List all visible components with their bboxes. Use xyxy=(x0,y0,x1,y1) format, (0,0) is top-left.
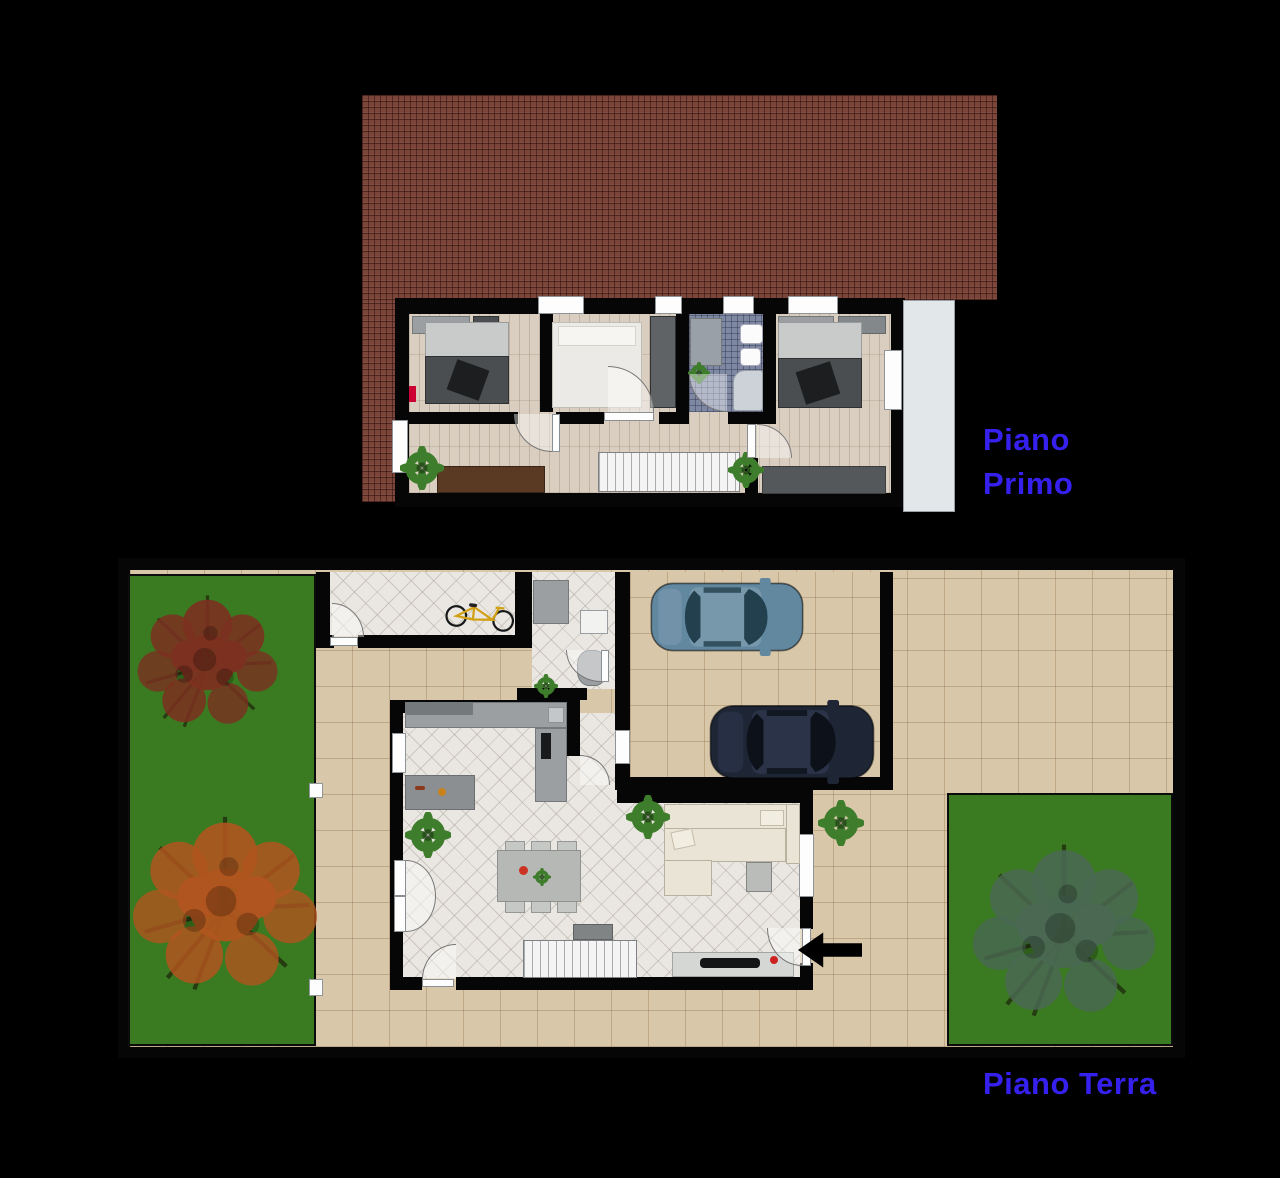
window xyxy=(392,733,406,773)
door-leaf xyxy=(330,637,358,646)
bed-headboard xyxy=(425,322,509,358)
dining-chair xyxy=(505,901,525,913)
wall-segment xyxy=(456,977,813,990)
floor-plan-canvas: Piano Primo xyxy=(0,0,1280,1178)
kitchen-counter-return xyxy=(535,728,567,802)
window xyxy=(884,350,902,410)
door-leaf xyxy=(601,650,609,682)
desk xyxy=(762,466,886,494)
small-table xyxy=(580,610,608,634)
staircase xyxy=(523,940,637,978)
window xyxy=(538,296,584,314)
wall-decor xyxy=(409,386,416,402)
sofa-chaise xyxy=(664,860,712,896)
wall-segment xyxy=(728,412,776,424)
sofa-arm xyxy=(786,804,800,864)
plant-icon xyxy=(626,795,670,839)
dark-car-icon xyxy=(700,700,884,784)
tv xyxy=(700,958,760,968)
dining-chair xyxy=(557,901,577,913)
hearth xyxy=(573,924,613,940)
pet-toy xyxy=(415,786,425,790)
cooktop xyxy=(541,733,551,759)
wall-segment xyxy=(659,412,689,424)
ground-floor-label: Piano Terra xyxy=(983,1066,1157,1102)
plant-icon xyxy=(818,800,864,846)
table-plant-icon xyxy=(533,868,551,886)
wall-segment xyxy=(390,977,422,990)
window xyxy=(723,296,754,314)
wall-segment xyxy=(763,314,776,415)
dining-chair xyxy=(531,901,551,913)
bidet xyxy=(740,348,761,366)
wall-segment xyxy=(800,790,813,836)
kitchen-upper-cabinet xyxy=(405,702,473,715)
window xyxy=(799,834,814,897)
counter xyxy=(533,580,569,624)
bed-pillows xyxy=(558,326,636,346)
label-line: Primo xyxy=(983,462,1073,506)
table-decor xyxy=(519,866,528,875)
pet-toy xyxy=(438,788,446,796)
bed-headboard xyxy=(778,322,862,360)
window xyxy=(655,296,682,314)
bathroom-vanity xyxy=(690,318,722,366)
autumn-tree-icon xyxy=(110,790,340,1020)
wall-segment xyxy=(409,412,518,424)
window xyxy=(788,296,838,314)
roof xyxy=(362,95,997,300)
first-floor-label: Piano Primo xyxy=(983,418,1073,506)
plant-icon xyxy=(405,812,451,858)
balcony xyxy=(903,300,955,512)
autumn-tree-icon xyxy=(120,575,295,750)
green-tree-icon xyxy=(950,818,1178,1046)
wall-segment xyxy=(556,412,604,424)
door-leaf xyxy=(422,979,454,987)
door-leaf xyxy=(604,412,654,421)
door-leaf xyxy=(394,896,406,932)
label-line: Piano xyxy=(983,418,1073,462)
door-leaf xyxy=(394,860,406,896)
staircase xyxy=(598,452,740,492)
kitchen-sink xyxy=(548,707,564,723)
coffee-table xyxy=(746,862,772,892)
wardrobe xyxy=(650,316,676,408)
garage-side-door xyxy=(615,730,630,764)
roof-left-eave xyxy=(362,300,395,502)
entrance-arrow-icon xyxy=(798,932,862,968)
tv-decor xyxy=(770,956,778,964)
plant-icon xyxy=(534,674,558,698)
sofa-pillow xyxy=(760,810,784,826)
plant-icon xyxy=(400,446,444,490)
bathtub xyxy=(733,370,763,411)
toilet xyxy=(740,324,763,344)
wall-segment xyxy=(800,896,813,929)
blue-car-icon xyxy=(648,578,806,656)
door-leaf xyxy=(552,414,560,452)
sideboard xyxy=(437,466,545,493)
wall-segment xyxy=(565,700,580,756)
door-leaf xyxy=(747,424,756,458)
